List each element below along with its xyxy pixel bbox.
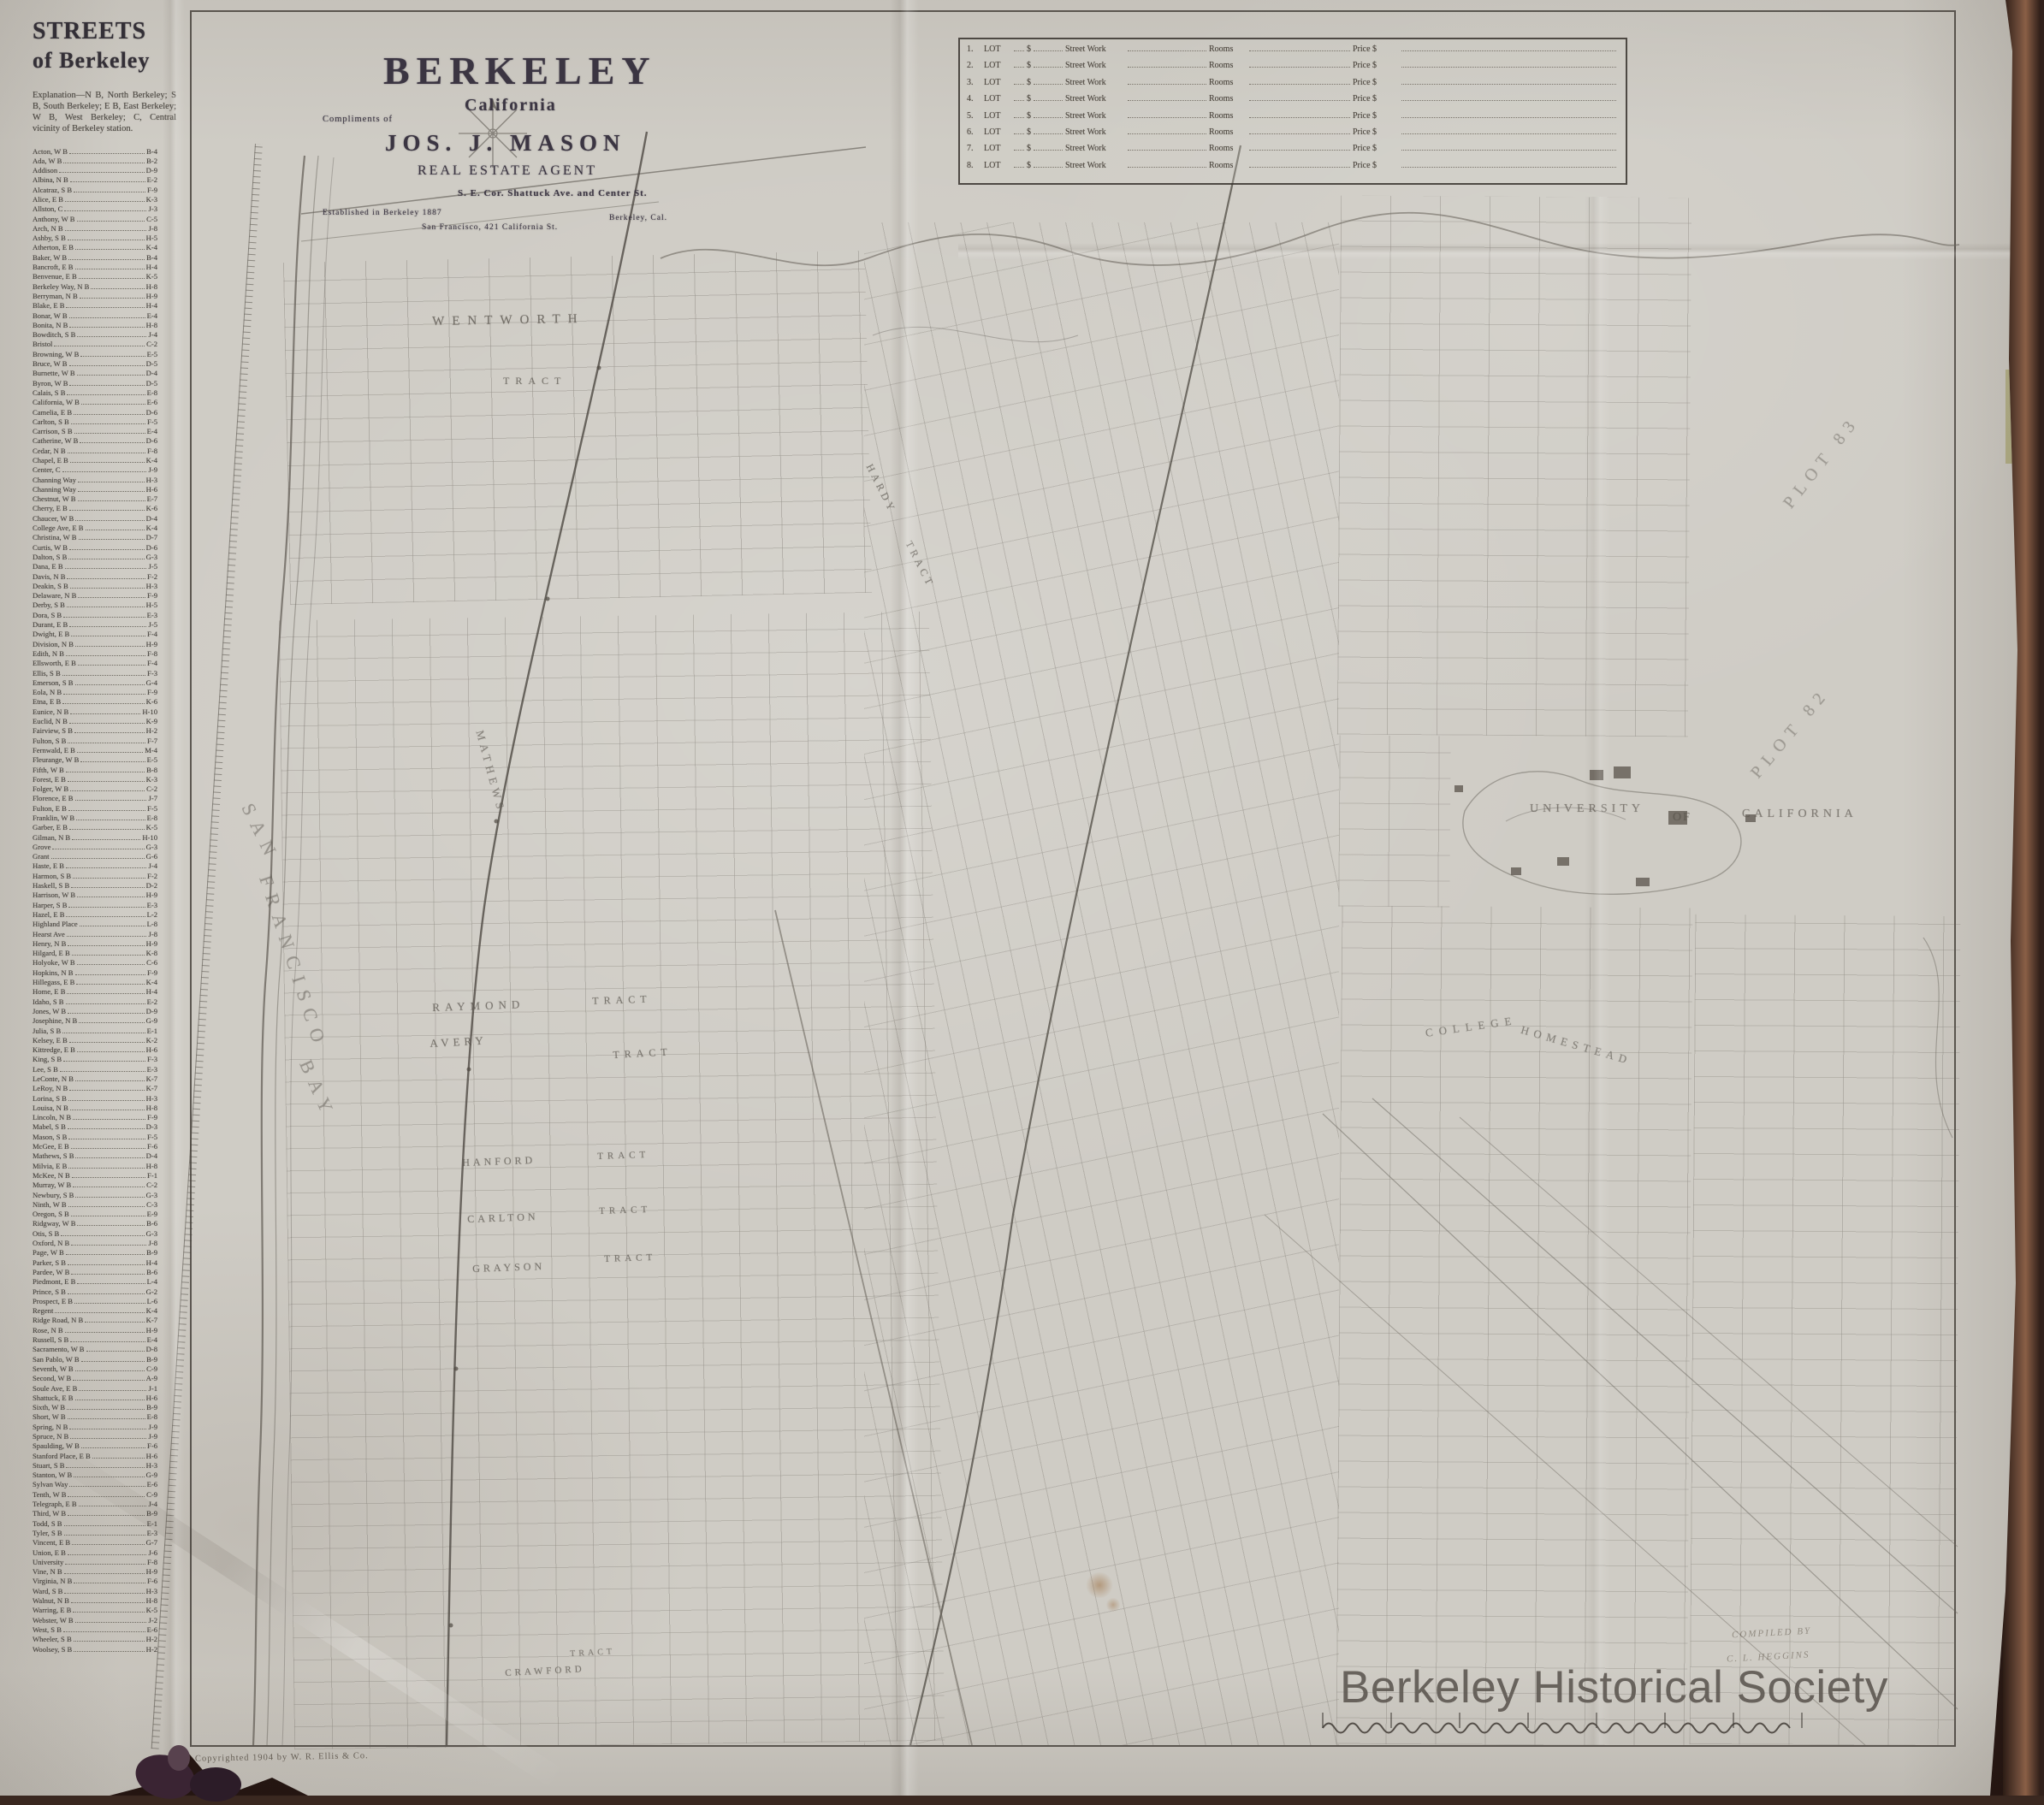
map-label: RAYMOND bbox=[432, 997, 524, 1015]
street-list-item: Arch, N BJ-8 bbox=[33, 224, 157, 234]
street-list-item: Florence, E BJ-7 bbox=[33, 794, 157, 803]
street-list-item: California, W BE-6 bbox=[33, 398, 157, 407]
street-list-item: College Ave, E BK-4 bbox=[33, 524, 157, 533]
compliments-line: Compliments of bbox=[323, 115, 393, 124]
street-list-item: UniversityF-8 bbox=[33, 1558, 157, 1567]
street-list-item: Woolsey, S BH-2 bbox=[33, 1645, 157, 1654]
street-list-item: Second, W BA-9 bbox=[33, 1374, 157, 1383]
campus-buildings bbox=[1454, 766, 1756, 886]
street-list-item: Pardee, W BB-6 bbox=[33, 1268, 157, 1277]
street-list-item: Sixth, W BB-9 bbox=[33, 1403, 157, 1412]
street-list-item: Page, W BB-9 bbox=[33, 1248, 157, 1258]
street-list-item: Forest, E BK-3 bbox=[33, 775, 157, 784]
street-list-item: Acton, W BB-4 bbox=[33, 147, 157, 157]
street-list-item: Parker, S BH-4 bbox=[33, 1258, 157, 1268]
street-list-item: Berkeley Way, N BH-8 bbox=[33, 282, 157, 292]
street-list-item: Hazel, E BL-2 bbox=[33, 910, 157, 920]
street-list-item: Hilgard, E BK-8 bbox=[33, 949, 157, 958]
street-list-item: Garber, E BK-5 bbox=[33, 823, 157, 832]
street-list-item: Bowditch, S BJ-4 bbox=[33, 330, 157, 340]
fold-crease bbox=[958, 243, 2043, 260]
street-list: Acton, W BB-4Ada, W BB-2AddisonD-9Albina… bbox=[33, 147, 185, 1654]
street-list-item: Christina, W BD-7 bbox=[33, 533, 157, 542]
street-list-item: Mabel, S BD-3 bbox=[33, 1122, 157, 1132]
street-list-item: Fulton, E BF-5 bbox=[33, 804, 157, 814]
street-index-title-line1: STREETS bbox=[33, 19, 185, 44]
lot-table-body: 1.LOT$Street WorkRoomsPrice $2.LOT$Stree… bbox=[967, 44, 1619, 177]
street-list-item: Euclid, N BK-9 bbox=[33, 717, 157, 726]
map-sheet: STREETS of Berkeley Explanation—N B, Nor… bbox=[0, 0, 2044, 1796]
street-list-item: Channing WayH-6 bbox=[33, 485, 157, 494]
map-neatline bbox=[190, 10, 1956, 1747]
street-list-item: Henry, N BH-9 bbox=[33, 939, 157, 949]
lot-table-row: 6.LOT$Street WorkRoomsPrice $ bbox=[967, 127, 1619, 144]
street-list-item: Deakin, S BH-3 bbox=[33, 582, 157, 591]
street-list-item: Vine, N BH-9 bbox=[33, 1567, 157, 1577]
street-list-item: Spruce, N BJ-9 bbox=[33, 1432, 157, 1441]
street-list-item: Fairview, S BH-2 bbox=[33, 726, 157, 736]
street-list-item: McGee, E BF-6 bbox=[33, 1142, 157, 1151]
street-grid-east-mid bbox=[1338, 736, 1450, 908]
street-list-item: Fifth, W BB-8 bbox=[33, 766, 157, 775]
street-list-item: Cedar, N BF-8 bbox=[33, 447, 157, 456]
street-list-item: Prince, S BG-2 bbox=[33, 1287, 157, 1297]
street-list-item: Walnut, N BH-8 bbox=[33, 1596, 157, 1606]
street-list-item: Bancroft, E BH-4 bbox=[33, 263, 157, 272]
street-list-item: Russell, S BE-4 bbox=[33, 1335, 157, 1345]
fold-crease bbox=[1585, 197, 1610, 1745]
street-index-title-line2: of Berkeley bbox=[33, 49, 185, 72]
street-list-item: Seventh, W BC-9 bbox=[33, 1364, 157, 1374]
stain bbox=[2005, 370, 2012, 464]
map-label: WENTWORTH bbox=[432, 312, 585, 329]
street-list-item: McKee, N BF-1 bbox=[33, 1171, 157, 1181]
street-list-item: Ellsworth, E BF-4 bbox=[33, 659, 157, 668]
street-list-item: Lee, S BE-3 bbox=[33, 1065, 157, 1074]
street-list-item: Camelia, E BD-6 bbox=[33, 408, 157, 417]
street-list-item: Etna, E BK-6 bbox=[33, 697, 157, 707]
street-list-item: Oregon, S BE-9 bbox=[33, 1210, 157, 1219]
street-list-item: Mason, S BF-5 bbox=[33, 1133, 157, 1142]
map-label: SAN bbox=[237, 800, 285, 867]
street-list-item: Byron, W BD-5 bbox=[33, 379, 157, 388]
street-list-item: Blake, E BH-4 bbox=[33, 301, 157, 311]
street-list-item: Hillegass, E BK-4 bbox=[33, 978, 157, 987]
map-label: TRACT bbox=[613, 1045, 672, 1062]
street-list-item: Hopkins, N BF-9 bbox=[33, 968, 157, 978]
map-label: TRACT bbox=[570, 1647, 615, 1659]
map-label: PLOT 83 bbox=[1780, 412, 1864, 512]
street-list-item: Ellis, S BF-3 bbox=[33, 669, 157, 678]
street-list-item: Louisa, N BH-8 bbox=[33, 1104, 157, 1113]
map-label: PLOT 82 bbox=[1747, 684, 1834, 783]
street-list-item: Murray, W BC-2 bbox=[33, 1181, 157, 1190]
street-list-item: Wheeler, S BH-2 bbox=[33, 1635, 157, 1644]
street-list-item: Highland PlaceL-8 bbox=[33, 920, 157, 929]
street-list-item: Ninth, W BC-3 bbox=[33, 1200, 157, 1210]
street-list-item: Ward, S BH-3 bbox=[33, 1587, 157, 1596]
street-list-item: Albina, N BE-2 bbox=[33, 175, 157, 185]
lot-price-table: 1.LOT$Street WorkRoomsPrice $2.LOT$Stree… bbox=[958, 38, 1627, 185]
street-list-item: Ridgway, W BB-6 bbox=[33, 1219, 157, 1228]
map-lines bbox=[0, 0, 2044, 1796]
street-list-item: Berryman, N BH-9 bbox=[33, 292, 157, 301]
street-grid-northwest bbox=[283, 251, 872, 605]
map-label: TRACT bbox=[903, 539, 937, 590]
street-list-item: Prospect, E BL-6 bbox=[33, 1297, 157, 1306]
street-list-item: Browning, W BE-5 bbox=[33, 350, 157, 359]
street-list-item: Bruce, W BD-5 bbox=[33, 359, 157, 369]
map-label: TRACT bbox=[503, 375, 566, 388]
sf-office-line: San Francisco, 421 California St. bbox=[422, 223, 558, 232]
street-list-item: Mathews, S BD-4 bbox=[33, 1151, 157, 1161]
map-label: UNIVERSITY bbox=[1530, 802, 1644, 816]
street-grid-east-upper bbox=[1337, 196, 1691, 737]
street-list-item: Union, E BJ-6 bbox=[33, 1548, 157, 1558]
street-list-item: Allston, CJ-3 bbox=[33, 204, 157, 214]
street-list-item: Vincent, E BG-7 bbox=[33, 1538, 157, 1548]
street-list-item: Kelsey, E BK-2 bbox=[33, 1036, 157, 1045]
street-list-item: Harrison, W BH-9 bbox=[33, 891, 157, 900]
street-list-item: Otis, S BG-3 bbox=[33, 1229, 157, 1239]
street-list-item: Stanton, W BG-9 bbox=[33, 1471, 157, 1480]
map-label: HARDY bbox=[863, 462, 899, 516]
street-list-item: Ridge Road, N BK-7 bbox=[33, 1316, 157, 1325]
street-list-item: Tenth, W BC-9 bbox=[33, 1490, 157, 1500]
map-label: AVERY bbox=[430, 1033, 488, 1050]
street-grid-central bbox=[864, 222, 1339, 1745]
street-list-item: Short, W BE-8 bbox=[33, 1412, 157, 1422]
street-list-item: Dana, E BJ-5 bbox=[33, 562, 157, 571]
street-list-item: Harmon, S BF-2 bbox=[33, 872, 157, 881]
street-list-item: Davis, N BF-2 bbox=[33, 572, 157, 582]
street-list-item: Kittredge, E BH-6 bbox=[33, 1045, 157, 1055]
compiled-by-line1: COMPILED BY bbox=[1732, 1626, 1812, 1641]
agent-name: JOS. J. MASON bbox=[385, 130, 626, 157]
map-label: OF bbox=[1673, 811, 1691, 825]
street-list-item: Virginia, N BF-6 bbox=[33, 1577, 157, 1586]
street-list-item: Alice, E BK-3 bbox=[33, 195, 157, 204]
street-list-item: Anthony, W BC-5 bbox=[33, 215, 157, 224]
street-list-item: Channing WayH-3 bbox=[33, 476, 157, 485]
street-list-item: GroveG-3 bbox=[33, 843, 157, 852]
stain bbox=[1105, 1598, 1121, 1612]
street-list-item: BristolC-2 bbox=[33, 340, 157, 349]
street-list-item: Spring, N BJ-9 bbox=[33, 1423, 157, 1432]
street-list-item: Chaucer, W BD-4 bbox=[33, 514, 157, 524]
map-title-city: BERKELEY bbox=[383, 48, 657, 93]
street-list-item: Alcatraz, S BF-9 bbox=[33, 186, 157, 195]
established-line: Established in Berkeley 1887 bbox=[323, 209, 442, 217]
street-list-item: Carrison, S BE-4 bbox=[33, 427, 157, 436]
street-list-item: Delaware, N BF-9 bbox=[33, 591, 157, 601]
copyright-line: Copyrighted 1904 by W. R. Ellis & Co. bbox=[195, 1751, 369, 1764]
street-list-item: Shattuck, E BH-6 bbox=[33, 1394, 157, 1403]
street-list-item: Baker, W BB-4 bbox=[33, 253, 157, 263]
street-list-item: Eunice, N BH-10 bbox=[33, 707, 157, 717]
street-list-item: Piedmont, E BL-4 bbox=[33, 1277, 157, 1287]
street-list-item: Fernwald, E BM-4 bbox=[33, 746, 157, 755]
street-list-item: Lincoln, N BF-9 bbox=[33, 1113, 157, 1122]
street-list-item: Emerson, S BG-4 bbox=[33, 678, 157, 688]
street-list-item: King, S BF-3 bbox=[33, 1055, 157, 1064]
street-list-item: Haskell, S BD-2 bbox=[33, 881, 157, 891]
street-list-item: Benvenue, E BK-5 bbox=[33, 272, 157, 281]
street-list-item: Harper, S BE-3 bbox=[33, 901, 157, 910]
street-list-item: San Pablo, W BB-9 bbox=[33, 1355, 157, 1364]
lot-table-row: 3.LOT$Street WorkRoomsPrice $ bbox=[967, 78, 1619, 94]
street-list-item: Fleurange, W BE-5 bbox=[33, 755, 157, 765]
street-list-item: Holyoke, W BC-6 bbox=[33, 958, 157, 968]
lot-table-row: 4.LOT$Street WorkRoomsPrice $ bbox=[967, 94, 1619, 110]
map-label: TRACT bbox=[604, 1252, 656, 1264]
street-list-item: Fulton, S BF-7 bbox=[33, 737, 157, 746]
street-list-item: Catherine, W BD-6 bbox=[33, 436, 157, 446]
street-list-item: Ada, W BB-2 bbox=[33, 157, 157, 166]
street-list-item: Bonar, W BE-4 bbox=[33, 311, 157, 321]
street-list-item: Todd, S BE-1 bbox=[33, 1519, 157, 1529]
street-list-item: Ashby, S BH-5 bbox=[33, 234, 157, 243]
map-label: TRACT bbox=[597, 1150, 649, 1162]
street-list-item: AddisonD-9 bbox=[33, 166, 157, 175]
station-dots bbox=[449, 366, 601, 1628]
lot-table-row: 5.LOT$Street WorkRoomsPrice $ bbox=[967, 111, 1619, 127]
street-grid-southeast bbox=[1690, 914, 1961, 1746]
street-list-item: Bonita, N BH-8 bbox=[33, 321, 157, 330]
street-list-item: Cherry, E BK-6 bbox=[33, 504, 157, 513]
street-grid-east-lower bbox=[1336, 906, 1693, 1747]
map-label: CARLTON bbox=[467, 1210, 539, 1226]
street-list-item: Stuart, S BH-3 bbox=[33, 1461, 157, 1471]
map-label: TRACT bbox=[592, 993, 652, 1008]
street-list-item: Division, N BH-9 bbox=[33, 640, 157, 649]
street-list-item: Lorina, S BH-3 bbox=[33, 1094, 157, 1104]
street-list-item: Spaulding, W BF-6 bbox=[33, 1441, 157, 1451]
street-list-item: Franklin, W BE-8 bbox=[33, 814, 157, 823]
street-list-item: Chestnut, W BE-7 bbox=[33, 494, 157, 504]
lot-table-row: 2.LOT$Street WorkRoomsPrice $ bbox=[967, 61, 1619, 77]
map-label: HANFORD bbox=[462, 1154, 536, 1169]
map-label: CALIFORNIA bbox=[1742, 808, 1857, 821]
street-list-item: RegentK-4 bbox=[33, 1306, 157, 1316]
street-list-item: Curtis, W BD-6 bbox=[33, 543, 157, 553]
lot-table-row: 7.LOT$Street WorkRoomsPrice $ bbox=[967, 144, 1619, 160]
street-list-item: Newbury, S BG-3 bbox=[33, 1191, 157, 1200]
map-label: FRANCISCO bbox=[254, 873, 332, 1053]
map-label: CRAWFORD bbox=[505, 1664, 585, 1678]
street-list-item: Edith, N BF-8 bbox=[33, 649, 157, 659]
street-list-item: Soule Ave, E BJ-1 bbox=[33, 1384, 157, 1394]
street-list-item: Atherton, E BK-4 bbox=[33, 243, 157, 252]
street-index-explanation: Explanation—N B, North Berkeley; S B, So… bbox=[33, 90, 176, 135]
street-list-item: Eola, N BF-9 bbox=[33, 688, 157, 697]
map-label: GRAYSON bbox=[472, 1260, 545, 1275]
street-list-item: Folger, W BC-2 bbox=[33, 784, 157, 794]
street-list-item: Oxford, N BJ-8 bbox=[33, 1239, 157, 1248]
lot-table-row: 1.LOT$Street WorkRoomsPrice $ bbox=[967, 44, 1619, 61]
map-label: BAY bbox=[294, 1056, 341, 1124]
street-list-item: Julia, S BE-1 bbox=[33, 1027, 157, 1036]
street-list-item: Idaho, S BE-2 bbox=[33, 997, 157, 1007]
street-list-item: Durant, E BJ-5 bbox=[33, 620, 157, 630]
street-list-item: Chapel, E BK-4 bbox=[33, 456, 157, 465]
street-list-item: Third, W BB-9 bbox=[33, 1509, 157, 1518]
street-list-item: Carlton, S BF-5 bbox=[33, 417, 157, 427]
street-list-item: LeConte, N BK-7 bbox=[33, 1074, 157, 1084]
map-label: TRACT bbox=[599, 1204, 651, 1216]
street-grid-west bbox=[279, 612, 945, 1749]
street-list-item: Milvia, E BH-8 bbox=[33, 1162, 157, 1171]
street-list-item: Sylvan WayE-6 bbox=[33, 1480, 157, 1489]
berkeley-office-line: Berkeley, Cal. bbox=[609, 214, 667, 222]
office-address: S. E. Cor. Shattuck Ave. and Center St. bbox=[458, 188, 648, 198]
street-list-item: LeRoy, N BK-7 bbox=[33, 1084, 157, 1093]
street-list-item: Jones, W BD-9 bbox=[33, 1007, 157, 1016]
agent-title: REAL ESTATE AGENT bbox=[418, 163, 597, 179]
street-list-item: Burnette, W BD-4 bbox=[33, 369, 157, 378]
street-list-item: Gilman, N BH-10 bbox=[33, 833, 157, 843]
street-list-item: Haste, E BJ-4 bbox=[33, 861, 157, 871]
watermark: Berkeley Historical Society bbox=[1340, 1661, 1888, 1713]
street-list-item: Telegraph, E BJ-4 bbox=[33, 1500, 157, 1509]
street-index: STREETS of Berkeley Explanation—N B, Nor… bbox=[33, 19, 185, 1654]
street-list-item: Tyler, S BE-3 bbox=[33, 1529, 157, 1538]
map-label: MATHEWS bbox=[473, 729, 508, 814]
stain bbox=[1085, 1572, 1114, 1598]
map-label: COLLEGE bbox=[1425, 1014, 1518, 1040]
street-list-item: Center, CJ-9 bbox=[33, 465, 157, 475]
street-list-item: Rose, N BH-9 bbox=[33, 1326, 157, 1335]
street-list-item: Dalton, S BG-3 bbox=[33, 553, 157, 562]
map-title-state: California bbox=[465, 96, 557, 115]
street-list-item: Hearst AveJ-8 bbox=[33, 930, 157, 939]
street-list-item: Webster, W BJ-2 bbox=[33, 1616, 157, 1625]
street-list-item: Calais, S BE-8 bbox=[33, 388, 157, 398]
street-list-item: Sacramento, W BD-8 bbox=[33, 1345, 157, 1354]
lot-table-row: 8.LOT$Street WorkRoomsPrice $ bbox=[967, 161, 1619, 177]
street-list-item: Derby, S BH-5 bbox=[33, 601, 157, 610]
street-list-item: Home, E BH-4 bbox=[33, 987, 157, 997]
street-list-item: Warring, E BK-5 bbox=[33, 1606, 157, 1615]
street-list-item: Dwight, E BF-4 bbox=[33, 630, 157, 639]
map-label: HOMESTEAD bbox=[1520, 1023, 1633, 1068]
street-list-item: Dora, S BE-3 bbox=[33, 611, 157, 620]
street-list-item: GrantG-6 bbox=[33, 852, 157, 861]
street-list-item: Josephine, N BG-9 bbox=[33, 1016, 157, 1026]
fold-crease bbox=[890, 0, 919, 1796]
street-list-item: Stanford Place, E BH-6 bbox=[33, 1452, 157, 1461]
street-list-item: West, S BE-6 bbox=[33, 1625, 157, 1635]
